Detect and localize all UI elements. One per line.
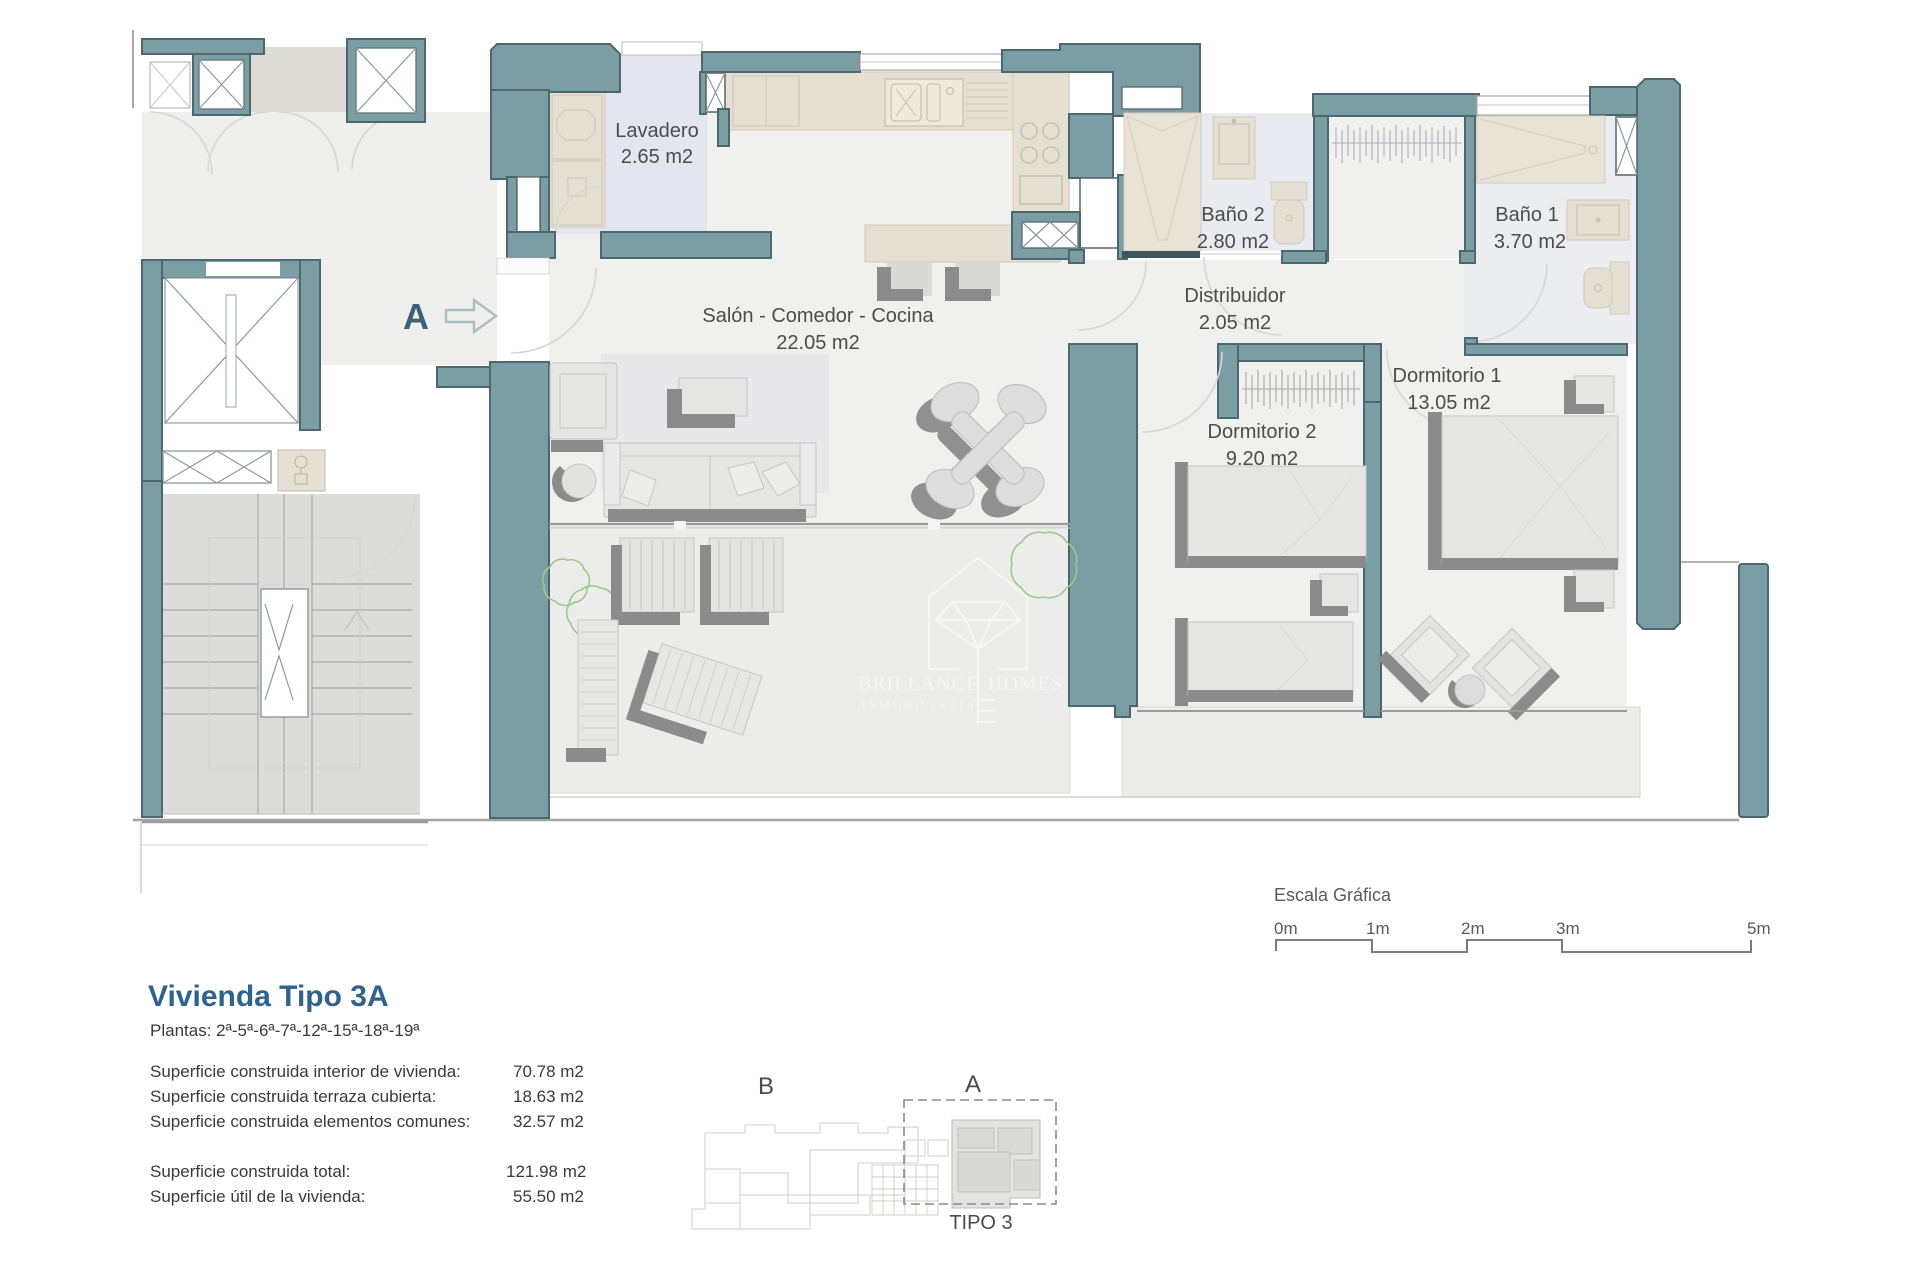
svg-text:Plantas: 2ª-5ª-6ª-7ª-12ª-15ª-1: Plantas: 2ª-5ª-6ª-7ª-12ª-15ª-18ª-19ª — [150, 1021, 420, 1040]
svg-text:1m: 1m — [1366, 919, 1390, 938]
svg-text:A: A — [965, 1071, 981, 1098]
svg-text:Superficie construida terraza: Superficie construida terraza cubierta: — [150, 1087, 436, 1106]
svg-text:TIPO 3: TIPO 3 — [949, 1212, 1012, 1234]
svg-text:3.70 m2: 3.70 m2 — [1494, 231, 1566, 253]
svg-text:18.63 m2: 18.63 m2 — [513, 1087, 584, 1106]
svg-text:Escala Gráfica: Escala Gráfica — [1274, 885, 1392, 905]
svg-text:2m: 2m — [1461, 919, 1485, 938]
svg-text:2.65 m2: 2.65 m2 — [621, 146, 693, 168]
svg-text:A: A — [403, 296, 429, 337]
svg-text:Dormitorio 2: Dormitorio 2 — [1208, 421, 1317, 443]
svg-text:Superficie construida total:: Superficie construida total: — [150, 1162, 350, 1181]
svg-text:2.80 m2: 2.80 m2 — [1197, 231, 1269, 253]
svg-text:22.05 m2: 22.05 m2 — [776, 332, 859, 354]
svg-text:Distribuidor: Distribuidor — [1184, 285, 1285, 307]
svg-text:B: B — [758, 1073, 774, 1100]
svg-text:BRILLANCE: BRILLANCE — [858, 673, 979, 695]
svg-text:Superficie construida elemento: Superficie construida elementos comunes: — [150, 1112, 470, 1131]
svg-text:13.05 m2: 13.05 m2 — [1407, 392, 1490, 414]
svg-text:3m: 3m — [1556, 919, 1580, 938]
svg-text:INMOBILIARIA: INMOBILIARIA — [862, 698, 977, 712]
svg-text:Baño 1: Baño 1 — [1495, 204, 1558, 226]
svg-text:Baño 2: Baño 2 — [1201, 204, 1264, 226]
svg-text:32.57 m2: 32.57 m2 — [513, 1112, 584, 1131]
svg-text:2.05 m2: 2.05 m2 — [1199, 312, 1271, 334]
svg-text:Superficie útil de la vivienda: Superficie útil de la vivienda: — [150, 1187, 365, 1206]
svg-text:Salón - Comedor - Cocina: Salón - Comedor - Cocina — [702, 305, 934, 327]
svg-text:9.20 m2: 9.20 m2 — [1226, 448, 1298, 470]
svg-text:Superficie construida interior: Superficie construida interior de vivien… — [150, 1062, 461, 1081]
svg-text:Lavadero: Lavadero — [615, 120, 698, 142]
svg-text:5m: 5m — [1747, 919, 1771, 938]
svg-text:HOMES: HOMES — [988, 673, 1063, 695]
svg-text:55.50 m2: 55.50 m2 — [513, 1187, 584, 1206]
svg-text:0m: 0m — [1274, 919, 1298, 938]
svg-text:121.98 m2: 121.98 m2 — [506, 1162, 586, 1181]
svg-text:70.78 m2: 70.78 m2 — [513, 1062, 584, 1081]
svg-text:Vivienda Tipo 3A: Vivienda Tipo 3A — [148, 980, 389, 1013]
svg-text:Dormitorio 1: Dormitorio 1 — [1393, 365, 1502, 387]
